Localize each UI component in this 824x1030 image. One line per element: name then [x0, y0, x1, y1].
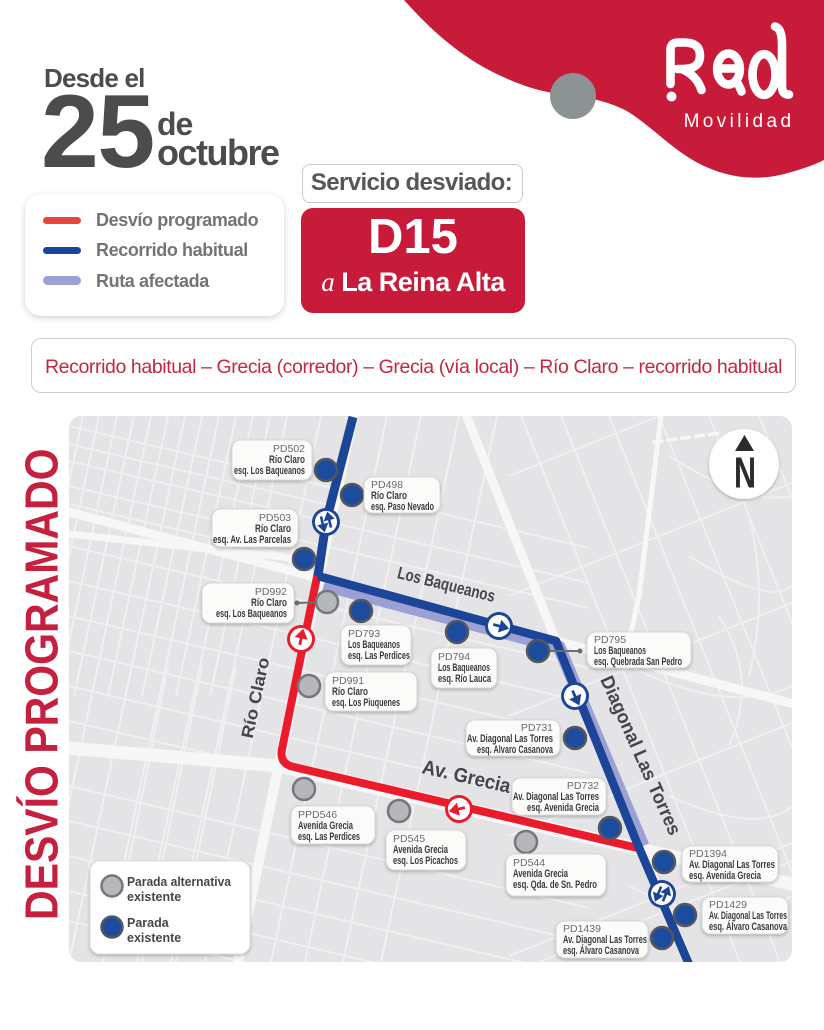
- svg-text:esq. Álvaro Casanova: esq. Álvaro Casanova: [563, 944, 640, 957]
- svg-text:N: N: [734, 449, 756, 498]
- svg-text:Parada alternativa: Parada alternativa: [127, 875, 232, 889]
- svg-text:Movilidad: Movilidad: [684, 111, 795, 132]
- svg-text:esq. Los Picachos: esq. Los Picachos: [393, 855, 458, 867]
- svg-text:esq. Las Perdices: esq. Las Perdices: [348, 650, 410, 662]
- svg-text:esq. Av. Las Parcelas: esq. Av. Las Parcelas: [213, 534, 291, 546]
- svg-text:esq. Avenida Grecia: esq. Avenida Grecia: [689, 870, 762, 882]
- svg-text:esq. Los Baqueanos: esq. Los Baqueanos: [234, 465, 305, 477]
- svg-text:esq. Qda. de Sn. Pedro: esq. Qda. de Sn. Pedro: [513, 879, 597, 891]
- svg-text:esq. Quebrada San Pedro: esq. Quebrada San Pedro: [594, 656, 682, 668]
- svg-text:esq. Los Baqueanos: esq. Los Baqueanos: [216, 608, 287, 620]
- svg-text:existente: existente: [127, 931, 181, 945]
- svg-text:esq. Álvaro Casanova: esq. Álvaro Casanova: [709, 920, 788, 933]
- svg-text:esq. Avenida Grecia: esq. Avenida Grecia: [527, 802, 600, 814]
- svg-text:existente: existente: [127, 890, 181, 904]
- svg-text:esq. Las Perdices: esq. Las Perdices: [298, 831, 360, 843]
- svg-text:esq. Paso Nevado: esq. Paso Nevado: [371, 501, 434, 513]
- svg-text:esq. Los Piuquenes: esq. Los Piuquenes: [332, 697, 400, 709]
- svg-text:esq. Río Lauca: esq. Río Lauca: [438, 673, 492, 685]
- svg-text:Parada: Parada: [127, 916, 170, 930]
- svg-text:esq. Alvaro Casanova: esq. Alvaro Casanova: [477, 744, 554, 756]
